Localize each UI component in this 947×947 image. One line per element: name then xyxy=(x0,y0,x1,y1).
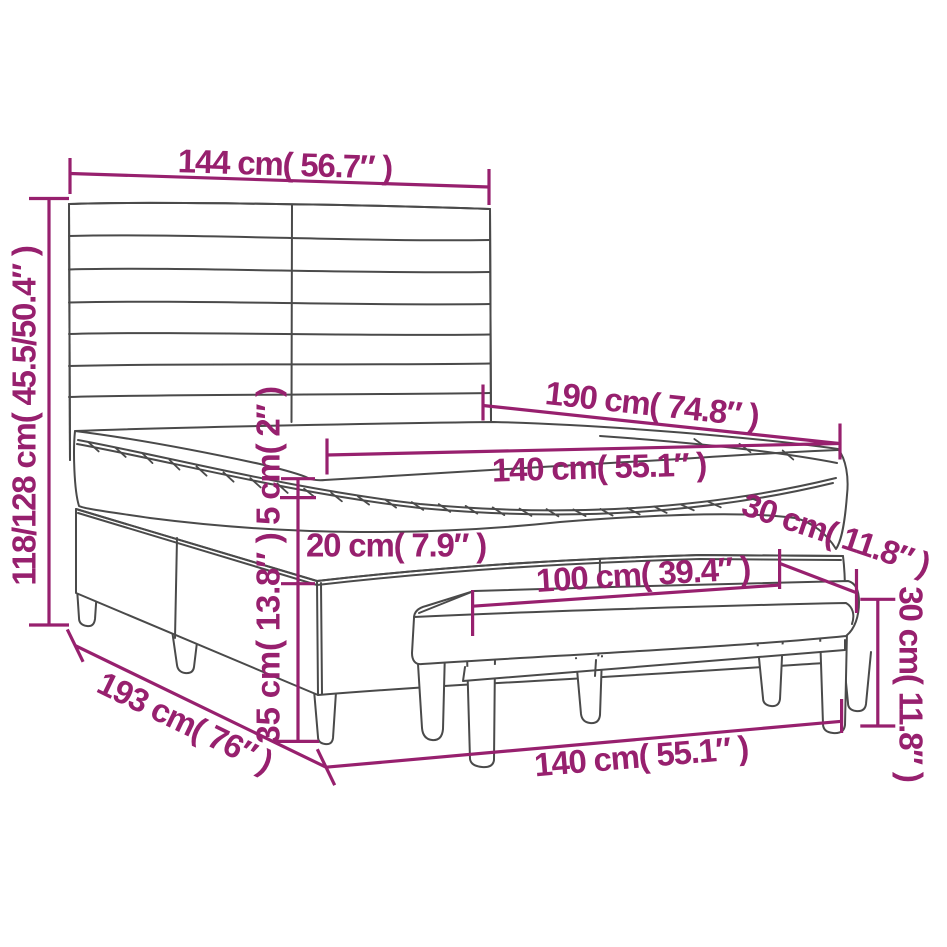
svg-text:20 cm( 7.9″ ): 20 cm( 7.9″ ) xyxy=(306,527,486,564)
svg-text:30 cm( 11.8″ ): 30 cm( 11.8″ ) xyxy=(893,586,930,782)
svg-text:144 cm( 56.7″ ): 144 cm( 56.7″ ) xyxy=(177,142,393,186)
svg-text:35 cm( 13.8″ ): 35 cm( 13.8″ ) xyxy=(250,532,287,743)
svg-text:118/128 cm( 45.5/50.4″ ): 118/128 cm( 45.5/50.4″ ) xyxy=(6,246,43,585)
svg-text:140 cm( 55.1″ ): 140 cm( 55.1″ ) xyxy=(491,445,706,488)
svg-text:5 cm( 2″ ): 5 cm( 2″ ) xyxy=(250,387,287,525)
